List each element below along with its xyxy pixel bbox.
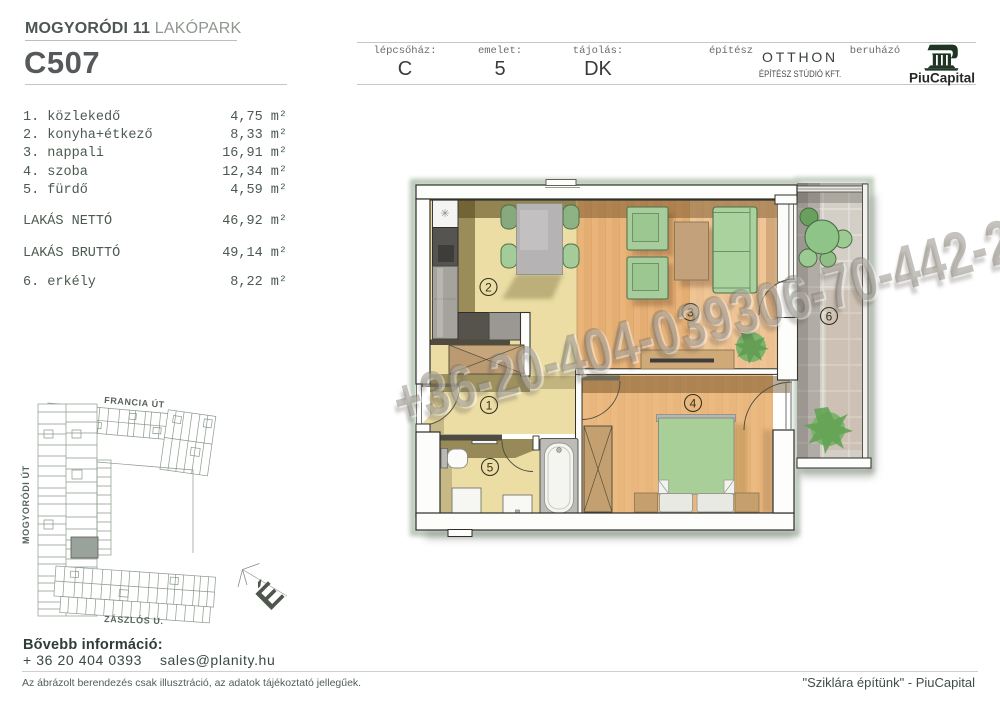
svg-text:É: É (249, 575, 291, 617)
svg-text:FRANCIA ÚT: FRANCIA ÚT (104, 394, 165, 410)
svg-text:ZÁSZLÓS U.: ZÁSZLÓS U. (104, 613, 164, 626)
svg-text:MOGYORÓDI ÚT: MOGYORÓDI ÚT (20, 465, 31, 544)
